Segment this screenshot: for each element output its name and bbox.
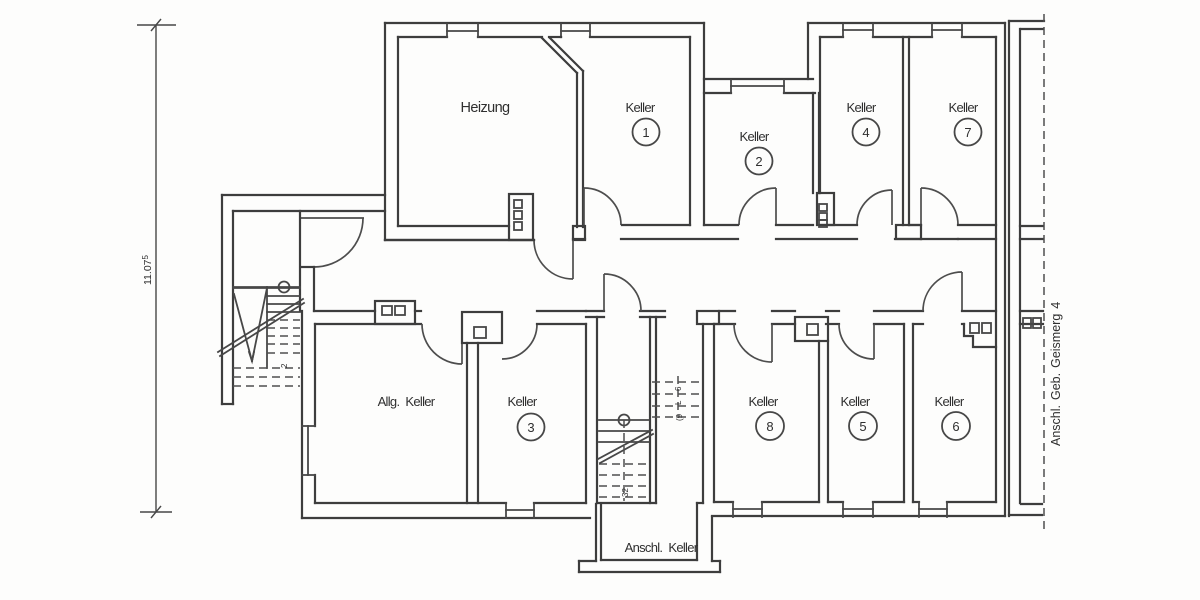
svg-text:Keller: Keller [846,100,876,115]
svg-text:4: 4 [862,125,869,140]
svg-text:L: L [674,400,683,405]
svg-text:2: 2 [755,154,762,169]
svg-text:8: 8 [766,419,773,434]
svg-text:32: 32 [621,488,630,497]
svg-text:Keller: Keller [507,394,537,409]
svg-text:(9: (9 [675,413,684,421]
svg-text:1: 1 [642,125,649,140]
svg-text:Keller: Keller [840,394,870,409]
svg-text:Keller: Keller [948,100,978,115]
svg-text:Keller: Keller [625,100,655,115]
svg-text:7: 7 [964,125,971,140]
svg-text:Keller: Keller [739,129,769,144]
svg-text:6: 6 [952,419,959,434]
svg-text:Anschl.Keller: Anschl.Keller [625,540,699,555]
svg-text:Keller: Keller [934,394,964,409]
svg-text:3: 3 [527,420,534,435]
svg-text:6: 6 [674,386,683,391]
svg-text:5: 5 [859,419,866,434]
svg-text:2: 2 [280,363,289,368]
svg-text:Keller: Keller [748,394,778,409]
svg-text:Allg.Keller: Allg.Keller [378,394,436,409]
svg-text:Anschl.Geb.Geismerg4: Anschl.Geb.Geismerg4 [1049,302,1063,446]
svg-text:Heizung: Heizung [461,100,511,116]
